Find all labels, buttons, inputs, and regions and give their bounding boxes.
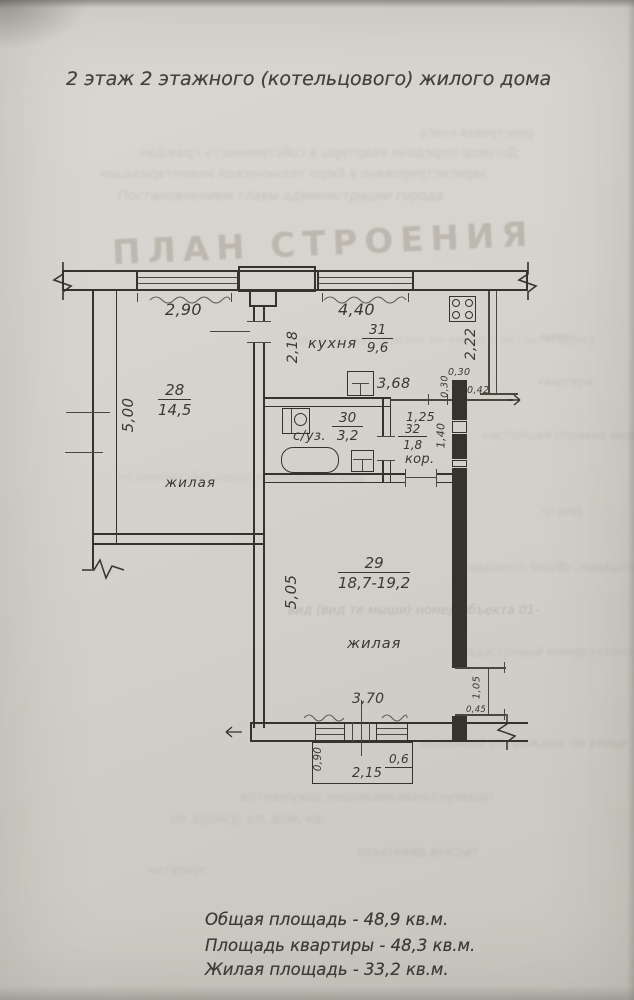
bleedthrough-text: Договор передачи квартиры в собственност… xyxy=(139,146,519,161)
dim-corridor-depth: 1,40 xyxy=(435,416,448,456)
dim-top-window-right: 4,40 xyxy=(338,300,375,319)
wall-bottom-outer xyxy=(250,722,528,724)
room29-area: 18,7-19,2 xyxy=(338,573,410,592)
wall-kitchen-right xyxy=(496,291,498,395)
bleedthrough-text: вид (вид те мыши) номер объекта 01- xyxy=(288,602,539,617)
toilet-icon xyxy=(362,459,363,471)
bleedthrough-text: общей площадью, общей площади xyxy=(467,560,634,574)
scan-edge-right xyxy=(627,0,634,1000)
break-mark-icon xyxy=(82,556,124,584)
room29-label: жилая xyxy=(347,636,401,652)
wall-bathroom-right xyxy=(390,461,392,483)
wall-continuation-arrow-icon xyxy=(508,393,524,407)
wall-partition xyxy=(253,343,255,728)
stove-icon xyxy=(452,299,460,307)
wall-divider-tick xyxy=(317,270,319,291)
bleedthrough-text: по адресу: ул. дом, кв. xyxy=(170,812,326,827)
wall-pier-entry xyxy=(452,380,467,420)
door-opening-tick xyxy=(377,460,395,461)
washbasin-icon xyxy=(294,413,307,426)
break-mark-icon xyxy=(494,714,520,750)
corridor-area: 1,8 xyxy=(398,437,427,452)
bleedthrough-text: квартира xyxy=(538,375,592,388)
scan-corner-shadow xyxy=(0,0,90,50)
kitchen-sink-icon xyxy=(360,383,361,395)
wall-segment xyxy=(452,434,467,459)
dim-balcony-depth: 0,90 xyxy=(312,740,324,778)
dimension-tick xyxy=(408,293,409,302)
wall-room28-bottom xyxy=(92,543,265,545)
plan-watermark: ПЛАН СТРОЕНИЯ xyxy=(111,215,535,273)
window-line xyxy=(137,277,237,278)
bleedthrough-text: правоустанавливающих документов xyxy=(239,790,493,805)
wall-continuation-arrow-icon xyxy=(220,724,242,742)
wall-bathroom-right xyxy=(382,461,384,483)
dim-room28-side: 5,00 xyxy=(119,390,137,440)
window-sill-wave-icon xyxy=(302,711,346,721)
wall-bathroom-top xyxy=(265,397,390,399)
wall-bottom-cap xyxy=(250,722,252,742)
bleedthrough-text: Постановлением главы администрации город… xyxy=(118,189,444,204)
wall-partition xyxy=(263,343,265,728)
dim-kitchen-depth: 3,68 xyxy=(377,376,411,392)
dimension-tick xyxy=(137,293,138,302)
balcony-door-line xyxy=(369,722,370,742)
wall-opening xyxy=(452,460,467,467)
dim-kitchen-side: 2,22 xyxy=(463,324,479,364)
wall-bathroom-bottom xyxy=(265,482,405,484)
room28-number-area: 28 14,5 xyxy=(158,381,191,419)
summary-apartment-area: Площадь квартиры - 48,3 кв.м. xyxy=(205,936,475,955)
window-line xyxy=(316,728,344,729)
wall-bathroom-right xyxy=(382,397,384,437)
door-sill-line xyxy=(210,331,250,332)
summary-living-area: Жилая площадь - 33,2 кв.м. xyxy=(205,960,449,979)
dim-balcony-door: 0,6 xyxy=(385,752,413,768)
kitchen-label: кухня xyxy=(308,336,357,352)
wall-divider-tick xyxy=(412,270,414,291)
dim-pier-width: 0,30 xyxy=(448,367,470,378)
kitchen-area: 9,6 xyxy=(362,339,393,356)
break-mark-icon xyxy=(50,262,74,300)
wall-bathroom-right xyxy=(390,397,392,437)
window-line xyxy=(377,728,407,729)
bleedthrough-text: реестр xyxy=(541,505,582,518)
wall-divider-tick xyxy=(136,270,138,291)
dimension-tick xyxy=(65,452,103,453)
dim-pier-offset: 0,42 xyxy=(467,385,489,396)
window-line xyxy=(318,277,412,278)
corridor-number-area: 32 1,8 xyxy=(398,422,427,452)
wall-corridor-bottom xyxy=(437,482,452,484)
kitchen-number: 31 xyxy=(362,322,393,339)
summary-total-area: Общая площадь - 48,9 кв.м. xyxy=(205,910,448,929)
dim-top-window-left: 2,90 xyxy=(165,300,202,319)
dimension-tick xyxy=(322,293,323,302)
entry-door-opening xyxy=(452,421,467,433)
window-line xyxy=(137,283,237,284)
scan-edge-top xyxy=(0,0,634,8)
wall-connector xyxy=(467,399,513,401)
door-opening-tick xyxy=(247,342,271,343)
wall-divider-tick xyxy=(376,722,377,742)
bleedthrough-text: нотариус xyxy=(148,863,207,877)
door-sill-line xyxy=(405,477,437,478)
wall-room29-right xyxy=(452,468,467,668)
window-sill-wave-icon xyxy=(380,711,408,721)
door-opening-tick xyxy=(377,436,395,437)
wall-partition xyxy=(253,306,255,322)
room29-number-area: 29 18,7-19,2 xyxy=(338,554,410,592)
door-opening-tick xyxy=(428,394,429,405)
balcony-door-line xyxy=(352,722,353,742)
dim-balcony-width: 2,15 xyxy=(352,766,382,781)
wall-room28-bottom xyxy=(92,533,265,535)
stove-icon xyxy=(465,311,473,319)
room29-number: 29 xyxy=(338,554,410,573)
wall-divider-tick xyxy=(315,722,316,742)
dim-room29-width: 3,70 xyxy=(352,691,384,707)
shaft-wall xyxy=(488,667,489,715)
dim-shaft-width: 0,45 xyxy=(466,705,486,715)
window-line xyxy=(316,734,344,735)
bathtub-icon xyxy=(281,447,339,473)
wall-bathroom-bottom xyxy=(265,473,405,475)
wall-divider-tick xyxy=(344,722,345,742)
wall-kitchen-right xyxy=(488,291,490,395)
wall-left-inner xyxy=(116,291,118,545)
bleedthrough-text: зарегистрировано в бюро технической инве… xyxy=(99,167,487,182)
wall-left-outer xyxy=(92,291,94,569)
break-mark-icon xyxy=(516,262,540,300)
stove-icon xyxy=(452,311,460,319)
door-opening-tick xyxy=(247,321,271,322)
shaft-wall-cap xyxy=(504,662,505,673)
page-title: 2 этаж 2 этажного (котельцового) жилого … xyxy=(66,68,551,90)
bleedthrough-text: семья xyxy=(539,330,575,343)
bleedthrough-text: кадастровый номер установлен xyxy=(460,645,634,659)
room28-area: 14,5 xyxy=(158,400,191,419)
bathroom-number: 30 xyxy=(332,410,363,427)
corridor-number: 32 xyxy=(398,422,427,437)
bleedthrough-text: настоящая справка выдана xyxy=(482,428,634,442)
bathroom-label: с/уз. xyxy=(293,428,326,444)
washbasin-icon xyxy=(291,409,292,433)
room28-number: 28 xyxy=(158,381,191,400)
wall-corridor-bottom xyxy=(437,473,452,475)
kitchen-number-area: 31 9,6 xyxy=(362,322,393,356)
dim-pier-height: 0,30 xyxy=(440,368,451,406)
bleedthrough-text: реестровая книга xyxy=(419,126,533,140)
dimension-tick xyxy=(231,293,232,302)
dim-partition-height: 2,18 xyxy=(285,327,301,367)
stove-icon xyxy=(465,299,473,307)
wall-pier-central xyxy=(238,266,316,292)
wall-divider-tick xyxy=(407,722,408,742)
window-line xyxy=(318,283,412,284)
dim-shaft-height: 1,05 xyxy=(472,669,483,707)
wall-partition xyxy=(263,306,265,322)
dimension-tick xyxy=(66,412,110,413)
wall-bathroom-top xyxy=(265,406,390,408)
window-line xyxy=(377,734,407,735)
scan-edge-bottom xyxy=(0,986,634,1000)
wall-room29-right xyxy=(452,716,467,742)
wall-pier-stem xyxy=(249,291,277,307)
scanned-page: Договор передачи квартиры в собственност… xyxy=(0,0,634,1000)
dim-room29-side: 5,05 xyxy=(282,567,300,617)
bathroom-area: 3,2 xyxy=(332,427,363,444)
room28-label: жилая xyxy=(165,475,216,491)
bleedthrough-text: тысяча девятьсот xyxy=(355,845,480,860)
corridor-label: кор. xyxy=(405,452,434,467)
bathroom-number-area: 30 3,2 xyxy=(332,410,363,444)
